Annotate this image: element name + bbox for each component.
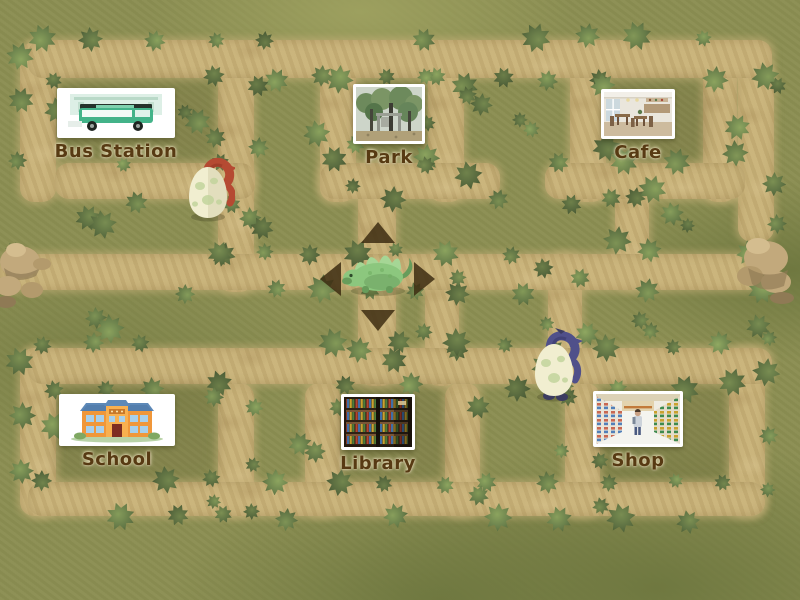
maze-board: Bus Station Park bbox=[0, 0, 800, 600]
location-card bbox=[59, 394, 175, 446]
player-dinosaur bbox=[338, 240, 416, 298]
location-card bbox=[57, 88, 175, 138]
location-library: Library bbox=[283, 394, 473, 474]
library-photo bbox=[344, 397, 412, 447]
egg-purple-hatchling bbox=[527, 328, 583, 404]
rocks-left bbox=[0, 224, 62, 310]
location-park: Park bbox=[294, 84, 484, 168]
location-label: Shop bbox=[611, 450, 664, 471]
bush bbox=[658, 200, 686, 228]
location-card bbox=[593, 391, 683, 447]
shop-photo bbox=[596, 394, 680, 444]
location-school: School bbox=[22, 394, 212, 470]
location-card bbox=[601, 89, 675, 139]
park-photo bbox=[356, 87, 422, 141]
location-label: Library bbox=[340, 453, 416, 474]
bush bbox=[677, 215, 698, 236]
rocks-right bbox=[728, 228, 798, 306]
location-label: Bus Station bbox=[55, 141, 178, 162]
location-label: Park bbox=[365, 147, 413, 168]
school-image bbox=[62, 397, 172, 443]
location-card bbox=[353, 84, 425, 144]
location-bus-station: Bus Station bbox=[21, 88, 211, 162]
cafe-photo bbox=[604, 92, 672, 136]
path-segment bbox=[28, 40, 772, 78]
location-cafe: Cafe bbox=[543, 89, 733, 163]
bus-station-photo bbox=[60, 91, 172, 135]
egg-red-hatchling bbox=[181, 155, 235, 223]
location-label: Cafe bbox=[614, 142, 661, 163]
location-label: School bbox=[82, 449, 152, 470]
location-card bbox=[341, 394, 415, 450]
